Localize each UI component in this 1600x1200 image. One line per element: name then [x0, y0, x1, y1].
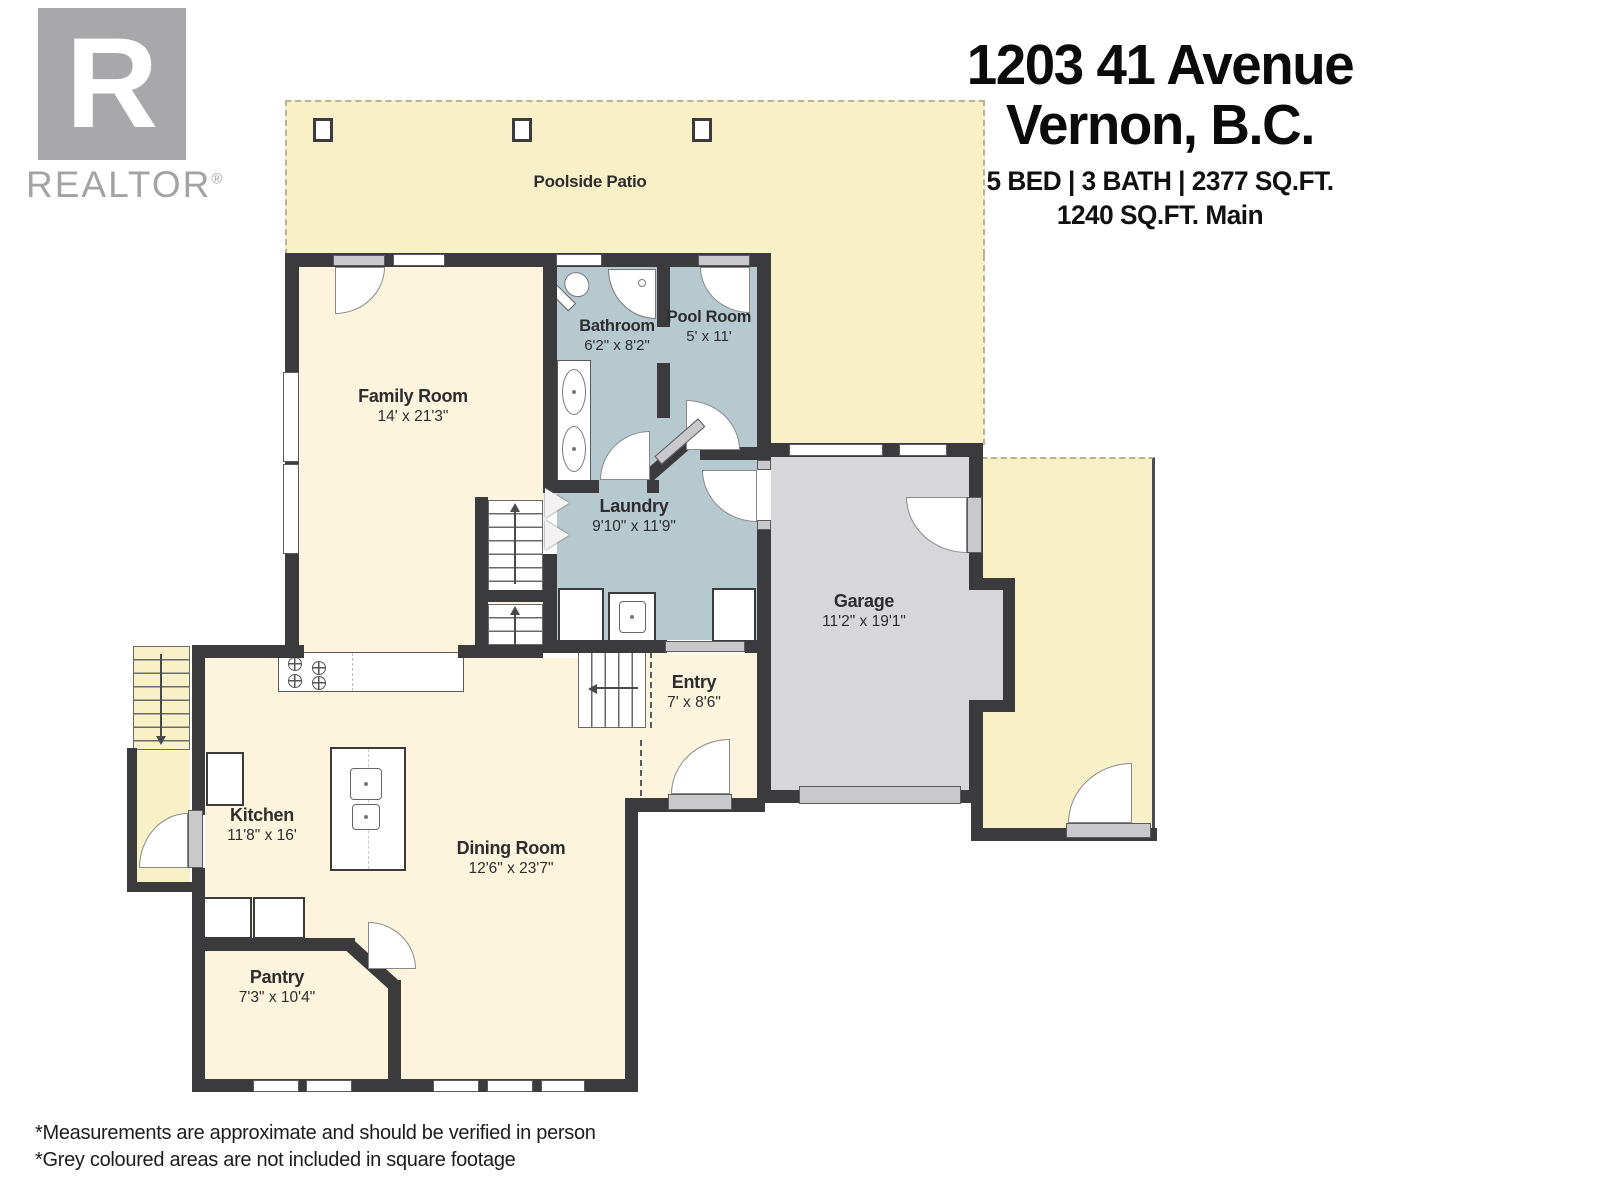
wall	[192, 938, 355, 951]
patio-post	[313, 118, 333, 142]
front-door-sill	[668, 794, 732, 810]
room-label-entry: Entry 7' x 8'6"	[667, 672, 721, 712]
wall	[475, 590, 543, 602]
washer	[558, 588, 604, 642]
room-name: Bathroom	[579, 317, 655, 336]
room-name: Garage	[822, 591, 906, 612]
window	[393, 254, 445, 266]
window	[306, 1080, 352, 1092]
wall	[543, 640, 667, 653]
room-dims: 7' x 8'6"	[667, 694, 721, 712]
realtor-wordmark: REALTOR®	[26, 164, 224, 206]
stove-burner-icon	[288, 674, 302, 688]
kitchen-counter	[278, 652, 464, 692]
room-dims: 5' x 11'	[667, 328, 751, 345]
sink-drain-icon	[364, 815, 368, 819]
room-dims: 11'2" x 19'1"	[822, 613, 906, 631]
spec-line-2: 1240 SQ.FT. Main	[947, 199, 1374, 232]
wall	[127, 882, 195, 892]
stairs-left-arrow-icon	[588, 684, 597, 694]
wall	[543, 267, 557, 482]
room-name: Dining Room	[457, 838, 566, 859]
window	[487, 1080, 533, 1092]
door-sill	[333, 255, 385, 266]
sink-drain-icon	[364, 782, 368, 786]
opening-dashed-line	[640, 740, 642, 796]
bifold-door-icon	[545, 488, 569, 518]
wall	[192, 645, 304, 658]
garage-door	[799, 786, 961, 804]
stairs-direction-line	[514, 510, 516, 584]
room-name: Entry	[667, 672, 721, 693]
realtor-logo-icon: R	[38, 8, 186, 160]
wall	[757, 528, 771, 803]
wall	[543, 554, 557, 653]
floor-plan-flyer: R REALTOR® 1203 41 Avenue Vernon, B.C. 5…	[0, 0, 1600, 1200]
wall	[745, 640, 757, 653]
room-dims: 7'3" x 10'4"	[239, 989, 315, 1007]
room-name: Family Room	[358, 386, 468, 407]
door-sill	[188, 810, 203, 868]
sink-drain-icon	[572, 447, 576, 451]
patio-label-text: Poolside Patio	[534, 172, 647, 192]
room-label-pool: Pool Room 5' x 11'	[667, 308, 751, 345]
room-label-bathroom: Bathroom 6'2" x 8'2"	[579, 317, 655, 354]
window	[283, 464, 299, 554]
room-name: Pool Room	[667, 308, 751, 327]
realtor-wordmark-text: REALTOR	[26, 164, 211, 205]
window	[433, 1080, 479, 1092]
window	[789, 444, 883, 456]
garage-notch-floor	[969, 590, 1003, 700]
freezer	[712, 588, 756, 642]
shower-knob-icon	[638, 279, 646, 287]
listing-header: 1203 41 Avenue Vernon, B.C. 5 BED | 3 BA…	[940, 35, 1380, 232]
pantry-shelf	[200, 897, 252, 939]
room-label-laundry: Laundry 9'10" x 11'9"	[592, 496, 676, 536]
patio-label: Poolside Patio	[534, 172, 647, 192]
window	[541, 1080, 585, 1092]
room-label-kitchen: Kitchen 11'8" x 16'	[227, 805, 297, 845]
registered-mark: ®	[211, 171, 224, 188]
room-dims: 6'2" x 8'2"	[579, 337, 655, 354]
sink-drain-icon	[630, 615, 634, 619]
room-dims: 11'8" x 16'	[227, 827, 297, 845]
address-line-1: 1203 41 Avenue	[949, 35, 1371, 95]
room-label-pantry: Pantry 7'3" x 10'4"	[239, 967, 315, 1007]
window	[556, 254, 602, 266]
room-name: Laundry	[592, 496, 676, 517]
room-label-dining: Dining Room 12'6" x 23'7"	[457, 838, 566, 878]
stove-burner-icon	[288, 657, 302, 671]
pantry-shelf	[253, 897, 305, 939]
wall	[458, 645, 543, 658]
stairs-direction-line	[594, 687, 638, 689]
door-sill	[757, 460, 771, 470]
room-dims: 12'6" x 23'7"	[457, 860, 566, 878]
sink-drain-icon	[572, 390, 576, 394]
door-sill	[665, 641, 745, 652]
door-sill	[967, 497, 982, 553]
address-line-2: Vernon, B.C.	[949, 95, 1371, 155]
realtor-logo-letter: R	[66, 20, 158, 148]
stove-burner-icon	[312, 676, 326, 690]
wall	[127, 748, 137, 892]
counter-divider-line	[352, 653, 353, 691]
stairs-direction-line	[160, 654, 162, 736]
stairs-up-arrow-icon	[510, 606, 520, 615]
footnote-grey-areas: *Grey coloured areas are not included in…	[35, 1149, 515, 1172]
wall	[625, 805, 638, 1092]
footnote-measurements: *Measurements are approximate and should…	[35, 1122, 596, 1145]
opening-dashed-line	[650, 652, 652, 728]
wall	[475, 497, 488, 658]
wall	[192, 645, 205, 815]
stove-burner-icon	[312, 661, 326, 675]
patio-right-area	[771, 255, 985, 445]
refrigerator	[206, 752, 244, 806]
room-dims: 14' x 21'3"	[358, 408, 468, 426]
patio-post	[692, 118, 712, 142]
wall	[657, 363, 670, 418]
window	[899, 444, 947, 456]
door-sill	[698, 255, 750, 266]
wall	[388, 980, 401, 1079]
patio-post	[512, 118, 532, 142]
spec-line-1: 5 BED | 3 BATH | 2377 SQ.FT.	[947, 164, 1374, 199]
door-sill	[1066, 823, 1151, 838]
door-sill	[757, 520, 771, 530]
room-dims: 9'10" x 11'9"	[592, 518, 676, 536]
window	[253, 1080, 299, 1092]
room-name: Pantry	[239, 967, 315, 988]
stairs-down-arrow-icon	[156, 736, 166, 745]
wall	[969, 706, 983, 803]
wall	[757, 253, 771, 463]
wall	[192, 868, 205, 1092]
room-label-garage: Garage 11'2" x 19'1"	[822, 591, 906, 631]
stairs-up-arrow-icon	[510, 503, 520, 512]
room-label-family: Family Room 14' x 21'3"	[358, 386, 468, 426]
bifold-door-icon	[545, 520, 569, 550]
wall	[1003, 578, 1015, 712]
room-name: Kitchen	[227, 805, 297, 826]
window	[283, 372, 299, 462]
